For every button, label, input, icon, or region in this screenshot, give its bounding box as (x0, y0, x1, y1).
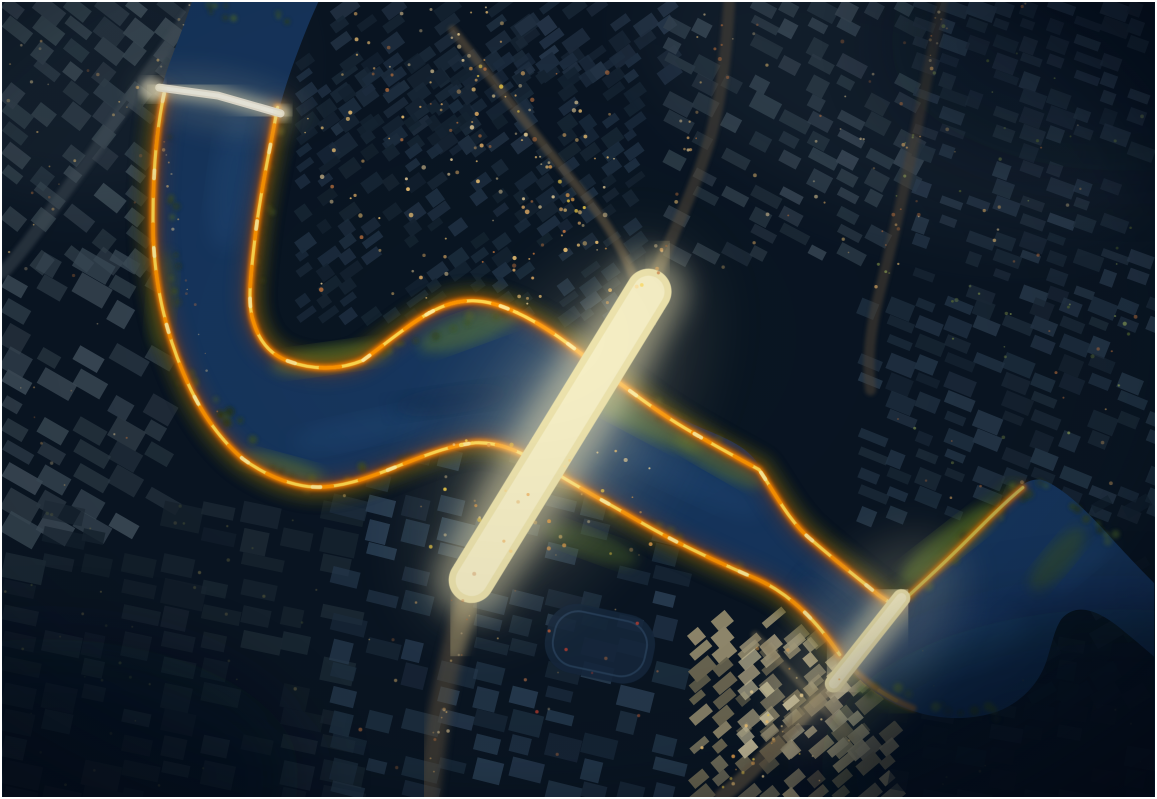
scene-canvas (2, 2, 1155, 797)
night-aerial-rendering (0, 0, 1157, 799)
vignette (2, 2, 1155, 797)
